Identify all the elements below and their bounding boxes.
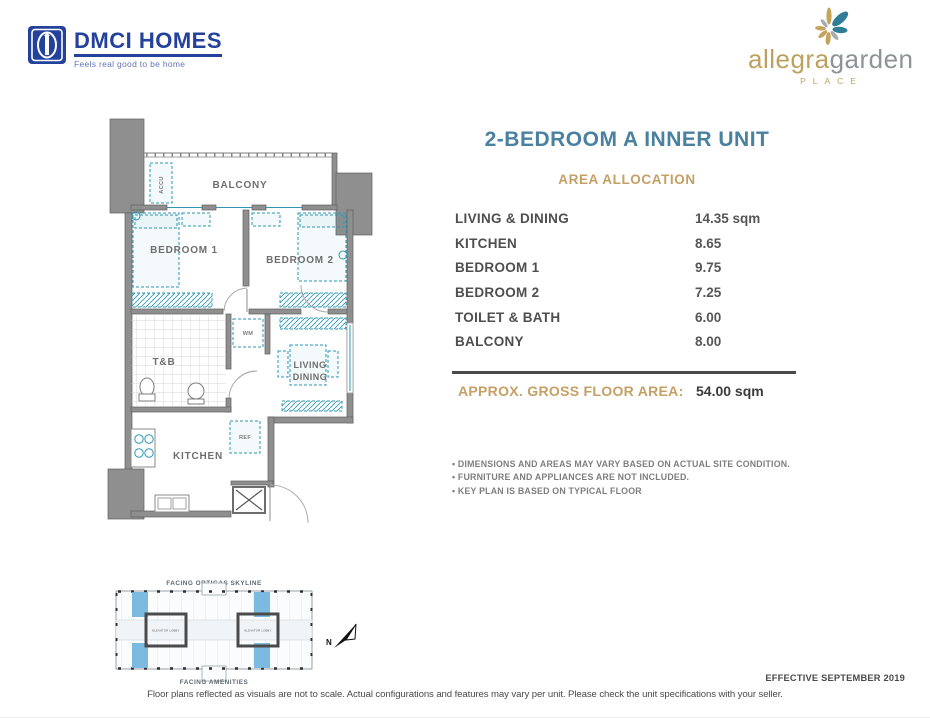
entry-shaft [233, 487, 265, 513]
dmci-tagline: Feels real good to be home [74, 59, 222, 69]
floor-plan-drawing: BALCONY BEDROOM 1 BEDROOM 2 T&B LIVING D… [100, 113, 380, 538]
bed1-sidetable [182, 213, 210, 226]
lavatory [188, 383, 204, 399]
area-label: BEDROOM 1 [455, 260, 695, 275]
chair [278, 351, 288, 377]
kitchen-label: KITCHEN [173, 451, 223, 462]
brand-word-allegra: allegra [748, 44, 830, 74]
living-label: LIVING [293, 360, 326, 370]
page-title: 2-BEDROOM A INNER UNIT [438, 128, 816, 152]
note-item: • FURNITURE AND APPLIANCES ARE NOT INCLU… [452, 471, 812, 484]
area-value: 9.75 [695, 260, 800, 275]
north-arrow-icon: N [326, 624, 356, 648]
table-row: TOILET & BATH 6.00 [455, 305, 800, 330]
allegra-garden-logo: allegragarden PLACE [748, 2, 908, 86]
bed2-pillow [300, 215, 344, 227]
key-plan: FACING ORTIGAS SKYLINE ELEVATOR LOBBY EL… [110, 576, 362, 688]
dmci-emblem-icon [28, 26, 66, 64]
toilet [140, 378, 154, 396]
brand-word-garden: garden [830, 44, 914, 74]
gross-floor-area-value: 54.00 sqm [696, 383, 798, 399]
elevator-lobby-label: ELEVATOR LOBBY [152, 629, 179, 633]
table-row: BEDROOM 1 9.75 [455, 255, 800, 280]
area-label: KITCHEN [455, 236, 695, 251]
gross-floor-area-row: APPROX. GROSS FLOOR AREA: 54.00 sqm [458, 383, 798, 399]
effective-date: EFFECTIVE SEPTEMBER 2019 [765, 673, 905, 683]
balcony-railing [144, 153, 332, 157]
area-label: LIVING & DINING [455, 211, 695, 226]
area-value: 6.00 [695, 310, 800, 325]
bedroom1-label: BEDROOM 1 [150, 245, 218, 256]
table-row: LIVING & DINING 14.35 sqm [455, 206, 800, 231]
footer-disclaimer: Floor plans reflected as visuals are not… [0, 689, 930, 700]
area-label: BALCONY [455, 334, 695, 349]
bed1-pillow [135, 215, 177, 228]
elevator-lobby-label: ELEVATOR LOBBY [244, 629, 271, 633]
divider [452, 371, 796, 374]
area-allocation-table: LIVING & DINING 14.35 sqm KITCHEN 8.65 B… [455, 206, 800, 354]
wm-label: WM [243, 331, 254, 337]
brochure-page: DMCI HOMES Feels real good to be home al… [0, 0, 930, 718]
note-item: • DIMENSIONS AND AREAS MAY VARY BASED ON… [452, 458, 812, 471]
area-label: BEDROOM 2 [455, 285, 695, 300]
bedroom2-label: BEDROOM 2 [266, 255, 334, 266]
area-value: 8.00 [695, 334, 800, 349]
brand-sub-place: PLACE [748, 76, 908, 86]
accu-label: ACCU [159, 176, 165, 193]
sink [155, 495, 189, 512]
allegra-wordmark: allegragarden [748, 46, 908, 72]
dmci-logo: DMCI HOMES Feels real good to be home [28, 26, 222, 69]
area-value: 14.35 sqm [695, 211, 800, 226]
stove [131, 429, 155, 467]
area-label: TOILET & BATH [455, 310, 695, 325]
table-row: BALCONY 8.00 [455, 329, 800, 354]
tb-label: T&B [153, 357, 176, 368]
dining-label: DINING [293, 372, 328, 382]
table-row: BEDROOM 2 7.25 [455, 280, 800, 305]
dmci-name: DMCI HOMES [74, 30, 222, 57]
ref-label: REF [239, 435, 251, 441]
area-value: 7.25 [695, 285, 800, 300]
toilet-tank [139, 394, 155, 401]
chair [328, 351, 338, 377]
note-item: • KEY PLAN IS BASED ON TYPICAL FLOOR [452, 485, 812, 498]
bed2-sidetable [252, 213, 280, 226]
area-allocation-heading: AREA ALLOCATION [438, 172, 816, 187]
north-label: N [326, 638, 332, 647]
balcony-label: BALCONY [212, 180, 267, 191]
notes-list: • DIMENSIONS AND AREAS MAY VARY BASED ON… [452, 458, 812, 498]
keyplan-bottom-label: FACING AMENITIES [180, 679, 249, 686]
gross-floor-area-label: APPROX. GROSS FLOOR AREA: [458, 383, 696, 399]
table-row: KITCHEN 8.65 [455, 231, 800, 256]
lavatory-counter [188, 399, 204, 404]
area-value: 8.65 [695, 236, 800, 251]
